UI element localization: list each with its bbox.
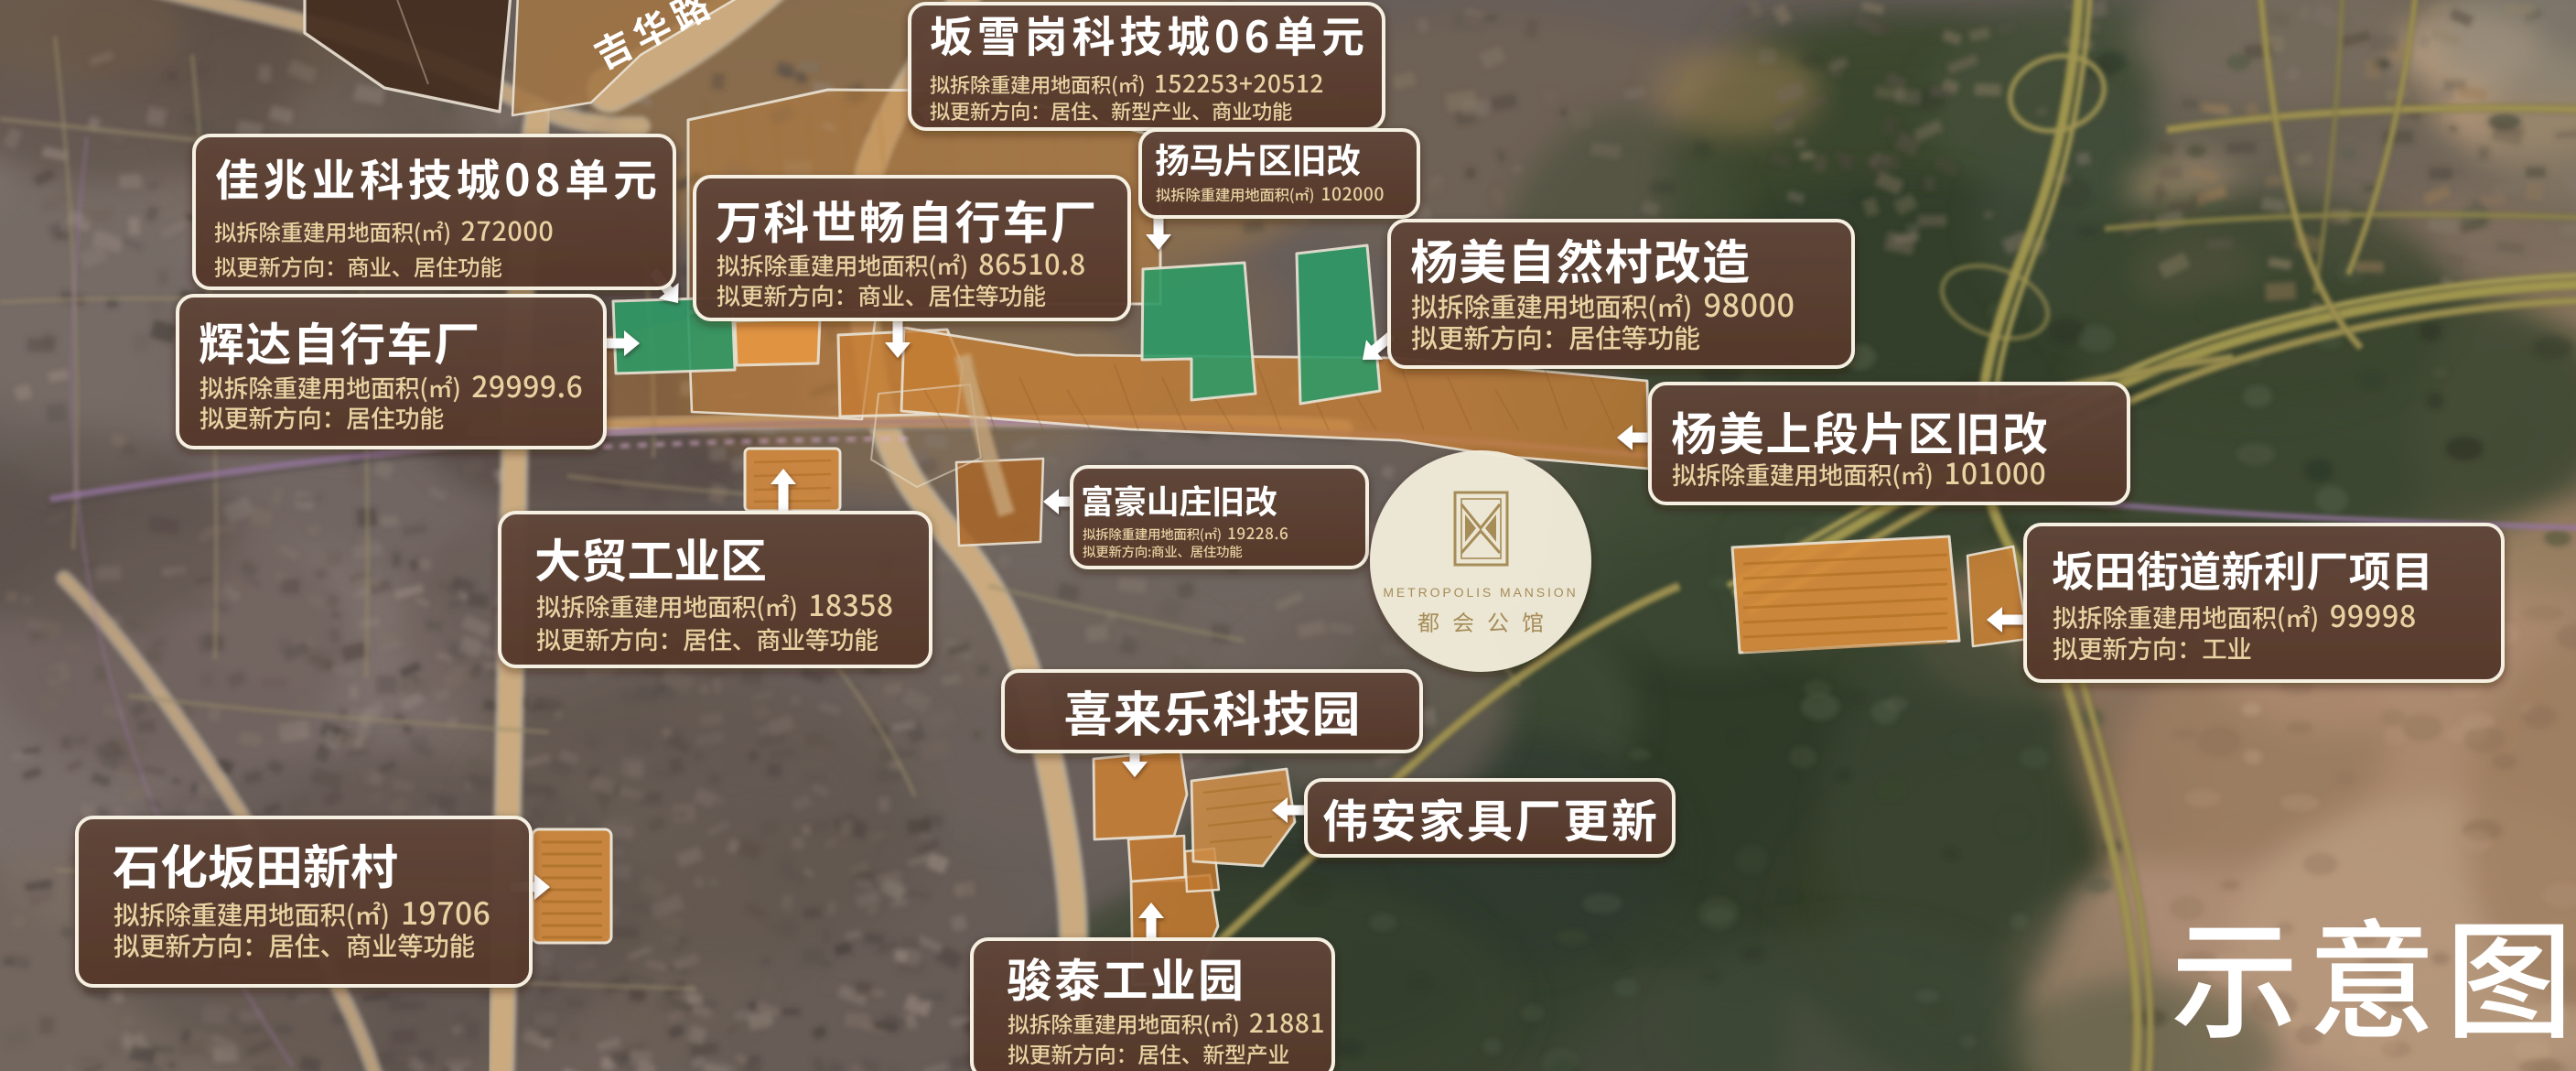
- svg-text:METROPOLIS MANSION: METROPOLIS MANSION: [1383, 585, 1578, 600]
